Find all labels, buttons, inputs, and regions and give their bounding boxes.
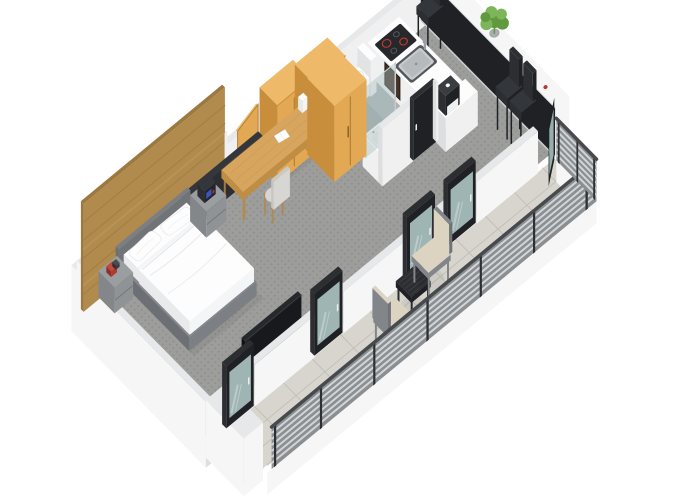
- scene-canvas: [0, 0, 700, 500]
- floorplan-3d-render: [0, 0, 700, 500]
- faucet: [424, 37, 425, 49]
- tall-cabinet: [307, 52, 366, 182]
